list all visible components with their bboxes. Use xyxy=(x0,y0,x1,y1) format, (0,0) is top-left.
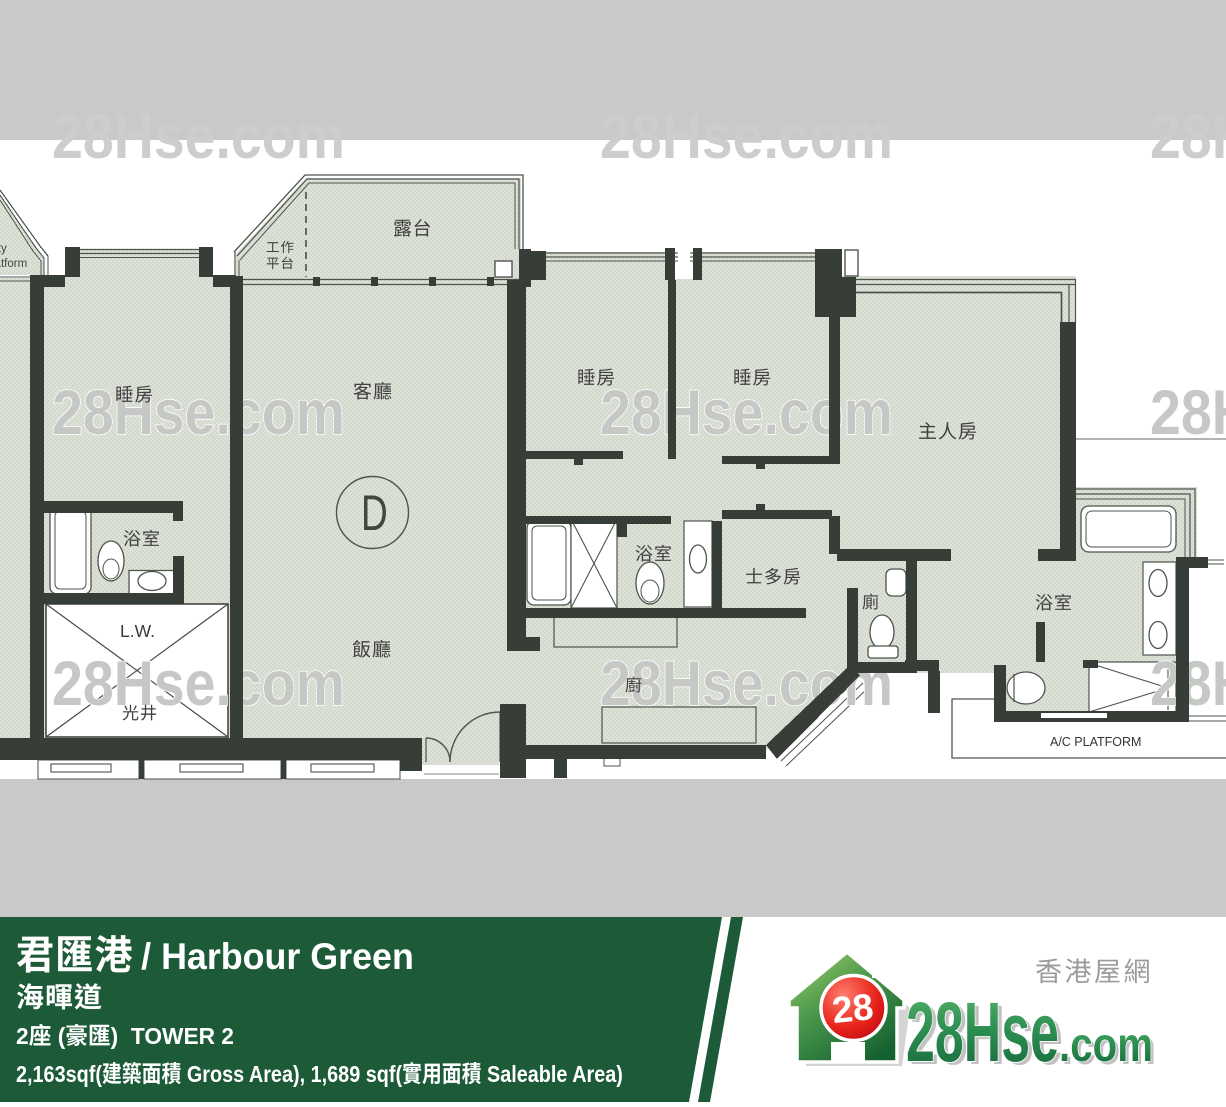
svg-text:/ Harbour Green: / Harbour Green xyxy=(141,935,414,977)
svg-text:D: D xyxy=(361,486,388,542)
svg-text:2,163sqf(: 2,163sqf( xyxy=(16,1060,103,1087)
svg-text:.com: .com xyxy=(1059,1019,1153,1072)
svg-text:A/C PLATFORM: A/C PLATFORM xyxy=(1050,735,1141,749)
svg-text:28Hse.com: 28Hse.com xyxy=(600,378,893,448)
svg-text:28Hse.com: 28Hse.com xyxy=(1150,102,1226,172)
svg-text:) TOWER 2: ) TOWER 2 xyxy=(111,1023,234,1049)
svg-text:tility: tility xyxy=(0,243,7,255)
svg-text:28Hse.com: 28Hse.com xyxy=(1150,378,1226,448)
svg-text:(: ( xyxy=(51,1023,65,1049)
svg-text:28Hse.com: 28Hse.com xyxy=(52,102,345,172)
svg-text:28Hse: 28Hse xyxy=(906,985,1059,1079)
svg-text:Saleable Area): Saleable Area) xyxy=(481,1060,622,1087)
svg-text:2: 2 xyxy=(16,1023,29,1049)
svg-text:28Hse.com: 28Hse.com xyxy=(600,102,893,172)
svg-text:28Hse.com: 28Hse.com xyxy=(52,649,345,719)
svg-text:28Hse.com: 28Hse.com xyxy=(52,378,345,448)
svg-text:Gross Area), 1,689 sqf(: Gross Area), 1,689 sqf( xyxy=(181,1060,402,1087)
svg-text:L.W.: L.W. xyxy=(120,621,155,641)
svg-text:latform: latform xyxy=(0,258,27,270)
svg-text:28: 28 xyxy=(830,986,875,1031)
